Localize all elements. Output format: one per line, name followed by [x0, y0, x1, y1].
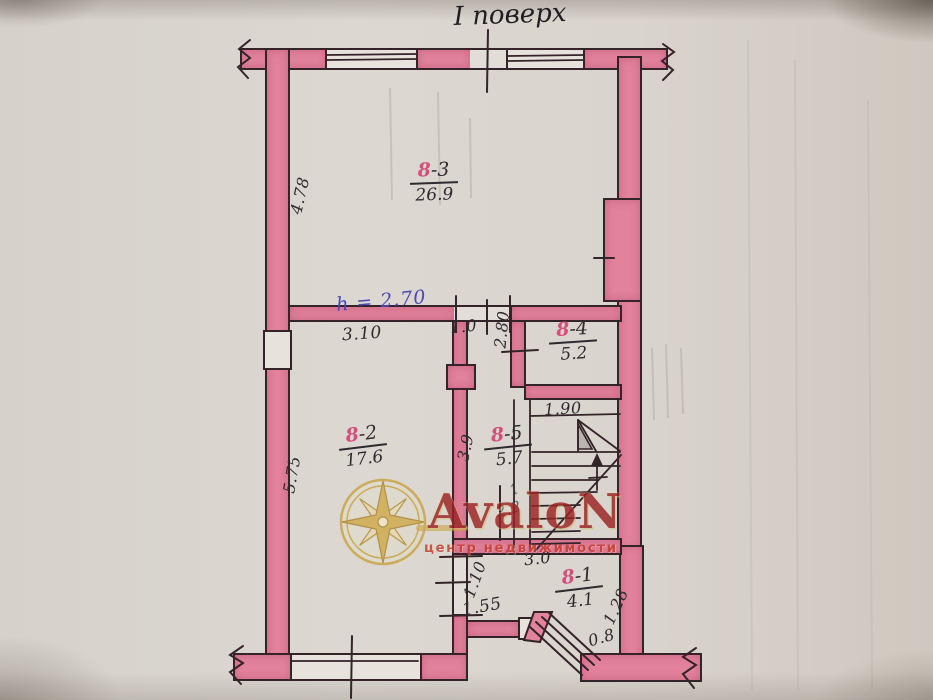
compass-rose-icon	[338, 477, 428, 567]
watermark-tagline: центр недвижимости	[424, 540, 618, 556]
entry-door-leaf	[518, 617, 534, 640]
floorplan-photo: І поверх 8-3 26.9 8-4 5.2 8-2 17.6 8-5 5…	[0, 0, 933, 700]
wall-bottom-left-segment	[233, 653, 293, 681]
dim-entry-door: 0.8	[586, 625, 617, 651]
window-glazing-lines	[292, 54, 583, 661]
wall-pier-bump	[446, 364, 476, 390]
dim-wall-280: 2.80	[490, 310, 513, 349]
watermark-brand: AvaloN	[428, 484, 622, 540]
dim-corridor-length: 3.9	[453, 432, 477, 462]
window-bottom	[290, 653, 422, 681]
dim-left-upper: 4.78	[286, 175, 313, 216]
wall-top-mid-segment	[416, 48, 472, 70]
wall-bottom-right-segment	[580, 653, 702, 682]
wall-bottom-mid-segment	[420, 653, 468, 681]
dim-room84-width: 1.90	[544, 398, 583, 419]
dim-partition-width: 3.10	[341, 323, 382, 346]
wall-entry-stub	[466, 620, 520, 638]
dim-door-opening: 1.0	[449, 316, 478, 338]
wall-right-outer	[617, 56, 642, 552]
wall-top-gap	[470, 48, 510, 70]
floor-title: І поверх	[425, 0, 596, 33]
room-label-8-2: 8-2 17.6	[323, 420, 402, 475]
wall-right-pier	[603, 198, 642, 302]
room-label-8-5: 8-5 5.7	[474, 421, 542, 473]
left-wall-niche	[263, 330, 292, 370]
room-label-8-4: 8-4 5.2	[540, 317, 605, 367]
window-top-2	[506, 48, 585, 70]
room-label-8-3: 8-3 26.9	[397, 159, 471, 207]
window-top-1	[325, 48, 418, 70]
wall-room84-left	[510, 320, 526, 388]
